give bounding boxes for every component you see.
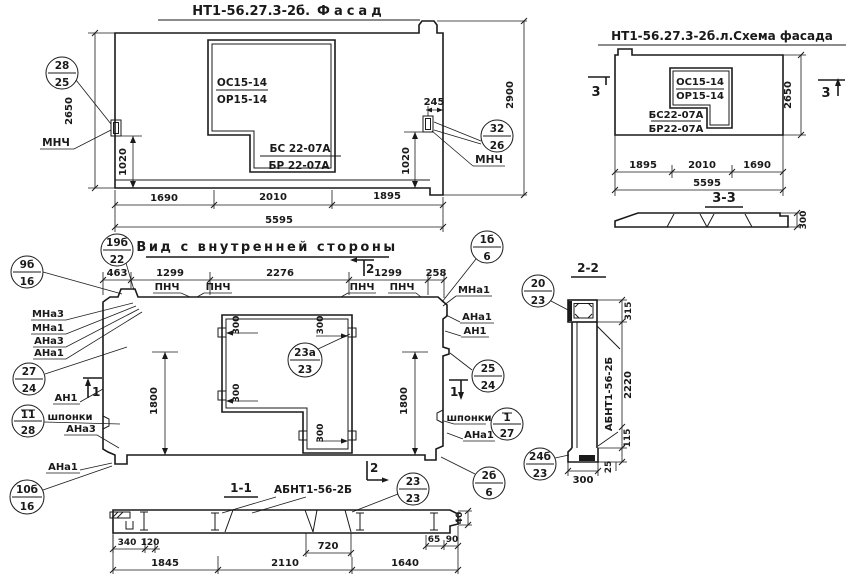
section-2-2-body-lines <box>572 322 597 448</box>
balloon-top: 2б <box>482 470 497 482</box>
balloon-leader <box>551 301 570 311</box>
label-ana1-lower: АНа1 <box>48 462 78 473</box>
dim-ticks <box>110 543 461 556</box>
facade-anchor-right-inner <box>426 119 431 130</box>
dim-text: 1299 <box>374 268 402 279</box>
cut-mark-text: 1 <box>450 385 458 399</box>
dim-text: 1690 <box>743 160 771 171</box>
section-2-2-right-dims: 315 2220 115 25 <box>597 297 634 473</box>
facade-sill-mark-bot: БР 22-07А <box>268 160 330 172</box>
balloon-top: 27 <box>22 366 37 378</box>
dim-text: 463 <box>107 268 128 279</box>
dim-lines <box>88 33 115 188</box>
inner-balloon-2b: 2б 6 <box>441 457 505 499</box>
section-2-2-balloon-24b: 24б 23 <box>524 448 569 480</box>
section-2-2-title: 2-2 <box>577 261 599 275</box>
dim-text: 1020 <box>118 148 129 176</box>
inner-balloon-27: 27 24 <box>13 347 127 395</box>
inner-cut-mark-2-top: 2 <box>350 257 374 276</box>
facade-balloon-left: 28 25 <box>46 57 111 124</box>
cut-mark-arrow <box>382 477 389 482</box>
scheme-cut-mark-left: 3 <box>588 77 610 100</box>
inner-balloon-9b: 9б 16 <box>11 256 122 294</box>
section-3-3-profile <box>615 213 788 227</box>
facade-mnch-left: МНЧ <box>42 137 70 149</box>
balloon-bot: 26 <box>490 140 505 152</box>
inner-cut-mark-2-bottom: 2 <box>367 461 389 483</box>
balloon-top: 1 <box>503 412 510 424</box>
facade-title-code: НТ1-56.27.3-2б. <box>192 4 310 19</box>
pnch-label: ПНЧ <box>155 282 180 293</box>
balloon-top: 25 <box>481 363 496 375</box>
balloon-leader <box>434 122 481 144</box>
label-mna1-right: МНа1 <box>458 285 490 296</box>
scheme-window-mark-top: ОС15-14 <box>676 77 724 88</box>
inner-cut-mark-1-right: 1 <box>449 380 468 400</box>
balloon-top: 10б <box>16 484 38 496</box>
i-mark <box>140 512 148 530</box>
dim-text: 2650 <box>64 97 75 125</box>
label-an1: АН1 <box>54 393 77 404</box>
facade-dim-245: 245 <box>424 97 445 116</box>
dim-text: 2900 <box>505 81 516 109</box>
scheme-bottom-dims: 1895 2010 1690 5595 <box>612 135 786 196</box>
pnch-label: ПНЧ <box>390 282 415 293</box>
balloon-bot: 6 <box>483 251 490 263</box>
balloon-bot: 27 <box>500 428 515 440</box>
dim-text: 245 <box>424 97 445 108</box>
label-ana3: АНа3 <box>34 336 64 347</box>
balloon-top: 23а <box>294 347 316 359</box>
facade-title-name: Фасад <box>317 4 386 19</box>
label-mna1-right-leader <box>443 296 492 306</box>
dim-text: 25 <box>604 461 614 474</box>
inner-tab-dims-300: 300 300 300 300 <box>226 316 348 444</box>
drawing-sheet: НТ1-56.27.3-2б.Фасад ОС15-14 ОР15-14 БС … <box>0 0 852 581</box>
dim-text: 1299 <box>156 268 184 279</box>
facade-window-mark-top: ОС15-14 <box>217 77 267 89</box>
scheme-cut-mark-right: 3 <box>818 78 845 101</box>
facade-sill-mark-top: БС 22-07А <box>269 143 331 155</box>
inner-dim-1800-right: 1800 <box>399 352 428 455</box>
cut-mark-text: 2 <box>366 262 374 276</box>
balloon-bot: 28 <box>21 425 36 437</box>
dim-text: 720 <box>318 541 339 552</box>
scheme-sill-mark-bot: БР22-07А <box>649 124 704 135</box>
dim-text: 5595 <box>693 178 721 189</box>
label-mna1: МНа1 <box>32 323 64 334</box>
balloon-bot: 23 <box>406 493 421 505</box>
balloon-leader <box>441 457 475 474</box>
balloon-top: 19б <box>106 237 128 249</box>
dim-text: 300 <box>573 475 594 486</box>
dim-text: 2650 <box>783 81 794 109</box>
section-2-2-balloon-20: 20 23 <box>522 275 570 311</box>
dim-text: 1895 <box>373 191 401 202</box>
cut-mark-text: 3 <box>591 85 600 100</box>
section-2-2-label: АБНТ1-56-2Б <box>604 357 615 431</box>
dim-lines <box>228 333 346 441</box>
balloon-top: 9б <box>20 259 35 271</box>
inner-pnch-labels: ПНЧ ПНЧ ПНЧ ПНЧ <box>153 282 421 297</box>
inner-opening-inner <box>226 319 348 449</box>
facade-view: НТ1-56.27.3-2б.Фасад ОС15-14 ОР15-14 БС … <box>40 4 527 232</box>
balloon-bot: 6 <box>485 487 492 499</box>
label-keys-left: шпонки <box>47 412 92 423</box>
section-1-1: 1-1 АБНТ1-56-2Б 23 23 40 340 120 <box>110 473 472 574</box>
dim-text: 2220 <box>623 371 634 399</box>
section-1-1-left-end-detail <box>110 512 148 530</box>
section-3-3-recess-lines <box>667 214 752 227</box>
balloon-bot: 22 <box>110 254 125 266</box>
label-keys-right: шпонки <box>446 413 491 424</box>
dim-arrows <box>226 330 348 443</box>
cut-mark-arrow <box>85 378 91 386</box>
inner-balloon-1: 1 27 <box>491 408 523 440</box>
facade-dim-2650: 2650 <box>64 30 115 191</box>
dim-text: 115 <box>623 429 633 448</box>
balloon-bot: 16 <box>20 276 35 288</box>
balloon-leader <box>450 353 472 370</box>
dim-text: 300 <box>799 211 809 230</box>
cut-mark-text: 2 <box>370 461 378 475</box>
scheme-view: НТ1-56.27.3-2б.л.Схема фасада ОС15-14 ОР… <box>588 29 846 230</box>
balloon-top: 1б <box>480 234 495 246</box>
dim-text: 340 <box>118 538 137 548</box>
dim-text: 1640 <box>391 558 419 569</box>
dim-text: 1845 <box>151 558 179 569</box>
dim-text: 300 <box>316 424 326 443</box>
dim-lines <box>780 213 801 227</box>
balloon-top: 32 <box>490 123 505 135</box>
section-2-2-frame-ticks <box>575 303 592 318</box>
scheme-window-mark-bot: ОР15-14 <box>676 91 724 102</box>
dim-text: 315 <box>624 302 634 321</box>
pnch-label: ПНЧ <box>206 282 231 293</box>
inner-balloon-23a: 23а 23 <box>288 334 350 377</box>
facade-window-mark-bot: ОР15-14 <box>217 94 267 106</box>
dim-text: 2010 <box>688 160 716 171</box>
facade-balloon-right: 32 26 <box>434 120 513 152</box>
balloon-bot: 23 <box>533 468 548 480</box>
section-1-1-balloon-23: 23 23 <box>352 473 429 512</box>
cut-mark-arrow <box>350 257 357 262</box>
dim-text: 1800 <box>149 387 160 415</box>
facade-bottom-dims: 1690 2010 1895 5595 <box>112 190 446 232</box>
balloon-bot: 23 <box>298 364 313 376</box>
dim-text: 1690 <box>150 193 178 204</box>
dim-text: 2110 <box>271 558 299 569</box>
balloon-bot: 23 <box>531 295 546 307</box>
label-ana3-lower: АНа3 <box>66 424 96 435</box>
section-1-1-label: АБНТ1-56-2Б <box>274 484 352 496</box>
dim-text: 1800 <box>399 387 410 415</box>
label-ana1: АНа1 <box>34 348 64 359</box>
dim-text: 2010 <box>259 192 287 203</box>
balloon-bot: 25 <box>55 77 70 89</box>
cut-mark-text: 3 <box>821 86 830 101</box>
balloon-leader <box>76 80 111 124</box>
dim-text: 300 <box>232 384 242 403</box>
dim-lines <box>113 533 458 557</box>
inner-dim-1800-left: 1800 <box>149 352 178 455</box>
label-ana1-right-lower: АНа1 <box>464 430 494 441</box>
section-1-1-dims-row1: 340 120 720 65 90 <box>110 533 461 557</box>
balloon-leader <box>555 455 569 458</box>
label-an1-right: АН1 <box>463 326 486 337</box>
section-1-1-i-marks <box>211 513 438 530</box>
dim-text: 1895 <box>629 160 657 171</box>
dim-text: 90 <box>446 535 459 545</box>
inner-view: Вид с внутренней стороны 19б 22 1б 6 463… <box>10 231 523 514</box>
section-1-1-title: 1-1 <box>230 481 252 495</box>
label-ana3-lower-leader <box>64 435 119 448</box>
balloon-top: 24б <box>529 451 551 463</box>
balloon-top: 23 <box>406 476 421 488</box>
panel-drawing-svg: НТ1-56.27.3-2б.Фасад ОС15-14 ОР15-14 БС … <box>0 0 852 581</box>
label-mna3: МНа3 <box>32 309 64 320</box>
section-1-1-recess-slopes <box>225 510 351 532</box>
balloon-bot: 24 <box>22 383 37 395</box>
pnch-label: ПНЧ <box>350 282 375 293</box>
dim-text: 2276 <box>266 268 294 279</box>
scheme-dim-2650: 2650 <box>783 52 806 138</box>
section-3-3: 3-3 300 <box>615 191 809 230</box>
dim-text: 300 <box>316 316 326 335</box>
section-2-2: 2-2 20 23 24б 23 315 2220 115 <box>522 261 634 486</box>
dim-text: 40 <box>455 512 465 525</box>
balloon-bot: 16 <box>20 501 35 513</box>
inner-title: Вид с внутренней стороны <box>136 240 397 255</box>
dim-text: 258 <box>426 268 447 279</box>
cut-mark-line <box>588 77 610 85</box>
dim-text: 5595 <box>265 215 293 226</box>
scheme-title: НТ1-56.27.3-2б.л.Схема фасада <box>611 29 833 43</box>
balloon-top: 28 <box>55 60 70 72</box>
balloon-bot: 24 <box>481 380 496 392</box>
label-ana1-right: АНа1 <box>462 312 492 323</box>
scheme-sill-mark-top: БС22-07А <box>649 110 704 121</box>
balloon-top: 11 <box>21 409 36 421</box>
section-2-2-foot-key <box>579 455 595 461</box>
cut-mark-text: 1 <box>92 385 100 399</box>
section-1-1-body <box>113 510 458 533</box>
facade-title: НТ1-56.27.3-2б.Фасад <box>192 4 385 19</box>
facade-dim-2900: 2900 <box>437 18 527 198</box>
dim-text: 65 <box>428 535 441 545</box>
balloon-top: 20 <box>531 278 546 290</box>
section-2-2-frame-edge <box>568 301 572 321</box>
facade-mnch-right: МНЧ <box>475 154 503 166</box>
dim-text: 1020 <box>401 147 412 175</box>
cut-mark-arrow <box>458 392 464 400</box>
dim-text: 300 <box>232 316 242 335</box>
section-1-1-dim-40: 40 <box>455 508 472 528</box>
dim-text: 120 <box>141 538 160 548</box>
section-2-2-label-leader <box>598 432 618 446</box>
section-3-3-title: 3-3 <box>712 191 736 206</box>
inner-cut-mark-1-left: 1 <box>83 378 102 399</box>
